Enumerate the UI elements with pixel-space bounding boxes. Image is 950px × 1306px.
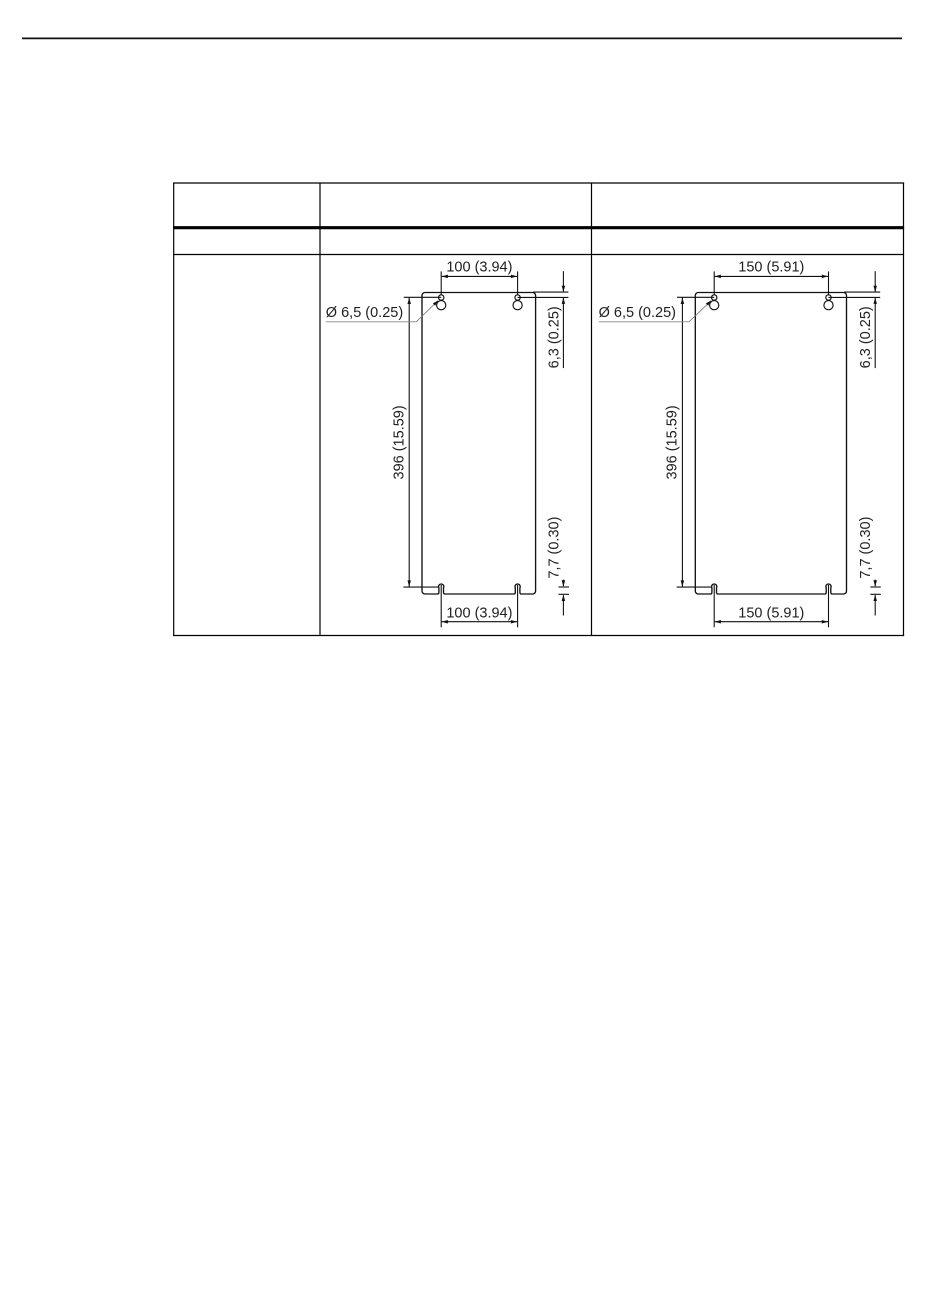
- svg-text:150 (5.91): 150 (5.91): [738, 259, 804, 275]
- svg-text:6,3 (0.25): 6,3 (0.25): [858, 306, 874, 368]
- svg-text:Ø 6,5 (0.25): Ø 6,5 (0.25): [326, 305, 403, 321]
- svg-text:100 (3.94): 100 (3.94): [446, 605, 512, 621]
- svg-text:150 (5.91): 150 (5.91): [738, 605, 804, 621]
- svg-text:6,3 (0.25): 6,3 (0.25): [546, 306, 562, 368]
- svg-text:Ø 6,5 (0.25): Ø 6,5 (0.25): [599, 305, 676, 321]
- svg-text:100 (3.94): 100 (3.94): [446, 259, 512, 275]
- svg-text:7,7 (0.30): 7,7 (0.30): [546, 517, 562, 579]
- svg-text:7,7 (0.30): 7,7 (0.30): [858, 517, 874, 579]
- svg-text:396 (15.59): 396 (15.59): [391, 405, 407, 479]
- svg-text:396 (15.59): 396 (15.59): [665, 405, 681, 479]
